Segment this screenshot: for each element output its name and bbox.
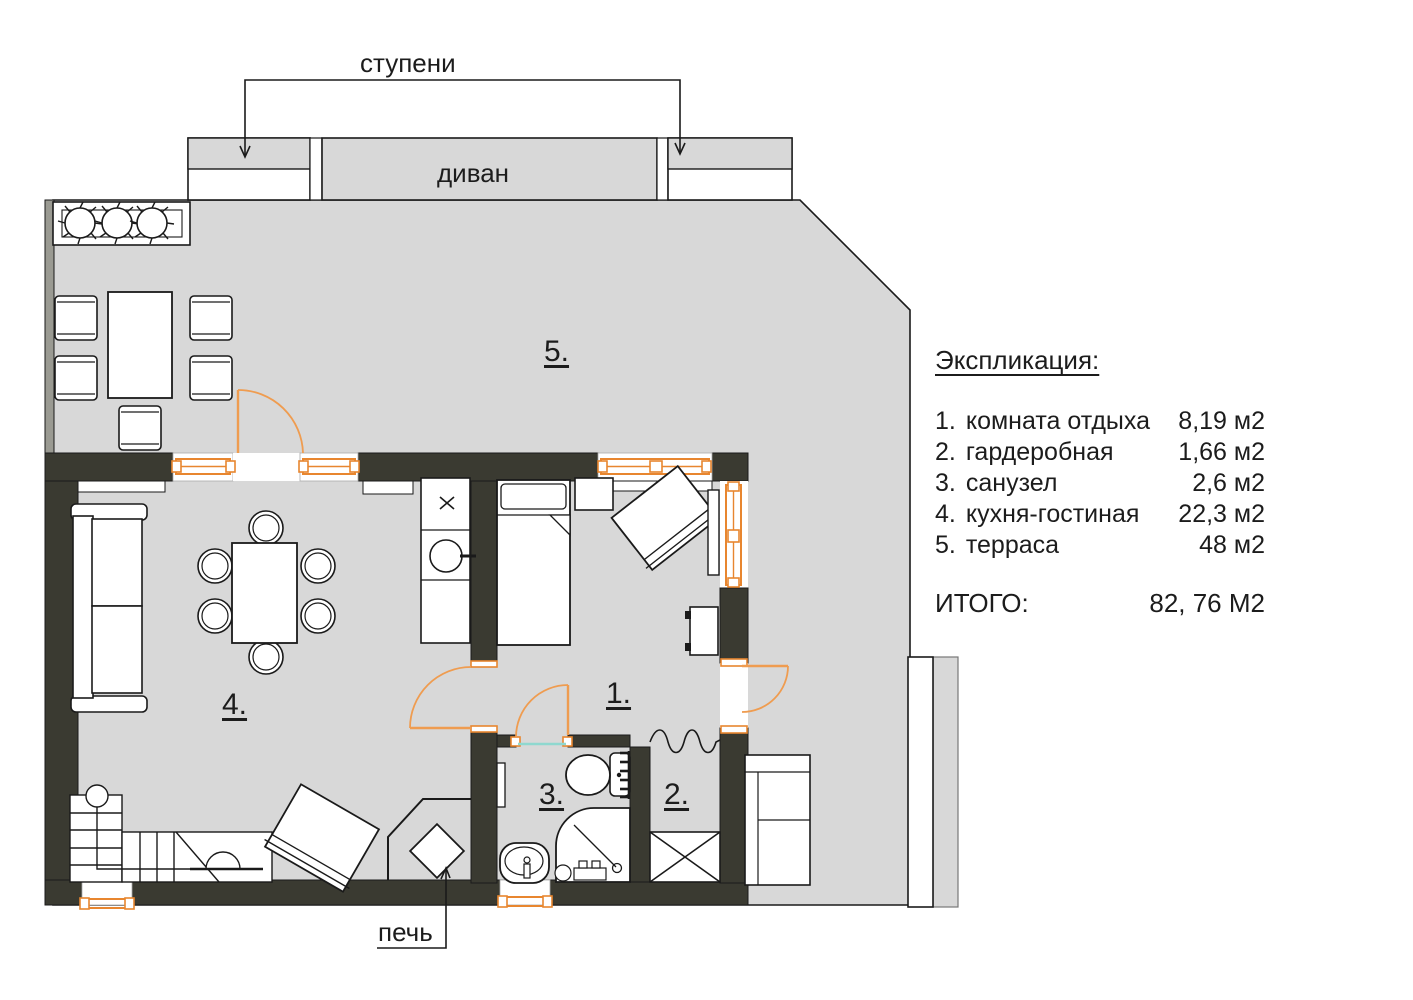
room-marker-terrace: 5.: [544, 335, 569, 369]
shower: [555, 808, 630, 882]
dining-chair: [301, 549, 335, 583]
legend-total-value: 82, 76 М2: [1149, 588, 1265, 619]
pillow: [501, 484, 566, 509]
dining-chair: [198, 549, 232, 583]
terrace-chair: [190, 296, 232, 340]
legend-item-area: 1,66 м2: [1178, 437, 1265, 468]
legend-item-area: 2,6 м2: [1192, 468, 1265, 499]
legend-item-name: санузел: [966, 468, 1058, 499]
dining-chair: [301, 599, 335, 633]
stove-label: печь: [378, 917, 433, 948]
floor-plan-page: ступени диван 5. 4. 1. 3. 2. печь Экспли…: [0, 0, 1413, 1000]
legend-row: 4.кухня-гостиная 22,3 м2: [935, 499, 1265, 530]
stair-newel-icon: [86, 785, 108, 807]
dining-chair: [198, 599, 232, 633]
bathroom-shelf: [497, 763, 505, 807]
legend-row: 1.комната отдыха 8,19 м2: [935, 406, 1265, 437]
bed: [497, 480, 570, 645]
legend-row: 5.терраса 48 м2: [935, 530, 1265, 561]
terrace-chair: [55, 356, 97, 400]
top-band-divider-left: [310, 138, 322, 200]
steps-label: ступени: [360, 48, 456, 79]
legend-item-name: комната отдыха: [966, 406, 1150, 437]
legend-item-area: 48 м2: [1199, 530, 1265, 561]
living-sofa: [71, 504, 147, 712]
kitchen-counter: [421, 478, 476, 643]
dining-chair: [249, 511, 283, 545]
terrace-table: [108, 292, 172, 398]
terrace-chair: [119, 406, 161, 450]
legend-item-number: 5.: [935, 530, 956, 561]
room-marker-bathroom: 3.: [539, 778, 564, 812]
legend-item-number: 2.: [935, 437, 956, 468]
dining-chair: [249, 640, 283, 674]
legend-item-area: 8,19 м2: [1178, 406, 1265, 437]
legend-item-name: терраса: [966, 530, 1059, 561]
top-step-block-right: [668, 138, 792, 200]
legend-item-number: 1.: [935, 406, 956, 437]
legend-total: ИТОГО: 82, 76 М2: [935, 588, 1265, 619]
bathroom-sink: [500, 843, 549, 883]
side-step-outer: [933, 657, 958, 907]
legend-total-label: ИТОГО:: [935, 588, 1029, 619]
wardrobe-box: [650, 832, 720, 882]
room-marker-wardrobe: 2.: [664, 778, 689, 812]
legend-item-name: гардеробная: [966, 437, 1114, 468]
legend: Экспликация: 1.комната отдыха 8,19 м2 2.…: [935, 345, 1265, 619]
bedside-table: [575, 478, 613, 510]
legend-item-area: 22,3 м2: [1178, 499, 1265, 530]
window-shelf-panel: [708, 490, 719, 575]
legend-item-number: 3.: [935, 468, 956, 499]
dining-table: [232, 543, 297, 643]
terrace-chair: [55, 296, 97, 340]
nightstand: [685, 607, 718, 655]
legend-item-name: кухня-гостиная: [966, 499, 1140, 530]
legend-row: 2.гардеробная 1,66 м2: [935, 437, 1265, 468]
terrace-chair: [190, 356, 232, 400]
side-step-inner: [908, 657, 933, 907]
room-marker-bedroom: 1.: [606, 677, 631, 711]
outdoor-bench: [745, 755, 810, 885]
legend-title: Экспликация:: [935, 345, 1265, 376]
top-band-divider-right: [657, 138, 668, 200]
sofa-label: диван: [437, 158, 509, 189]
legend-item-number: 4.: [935, 499, 956, 530]
planter-box: [53, 202, 190, 245]
room-marker-kitchen: 4.: [222, 688, 247, 722]
legend-row: 3.санузел 2,6 м2: [935, 468, 1265, 499]
